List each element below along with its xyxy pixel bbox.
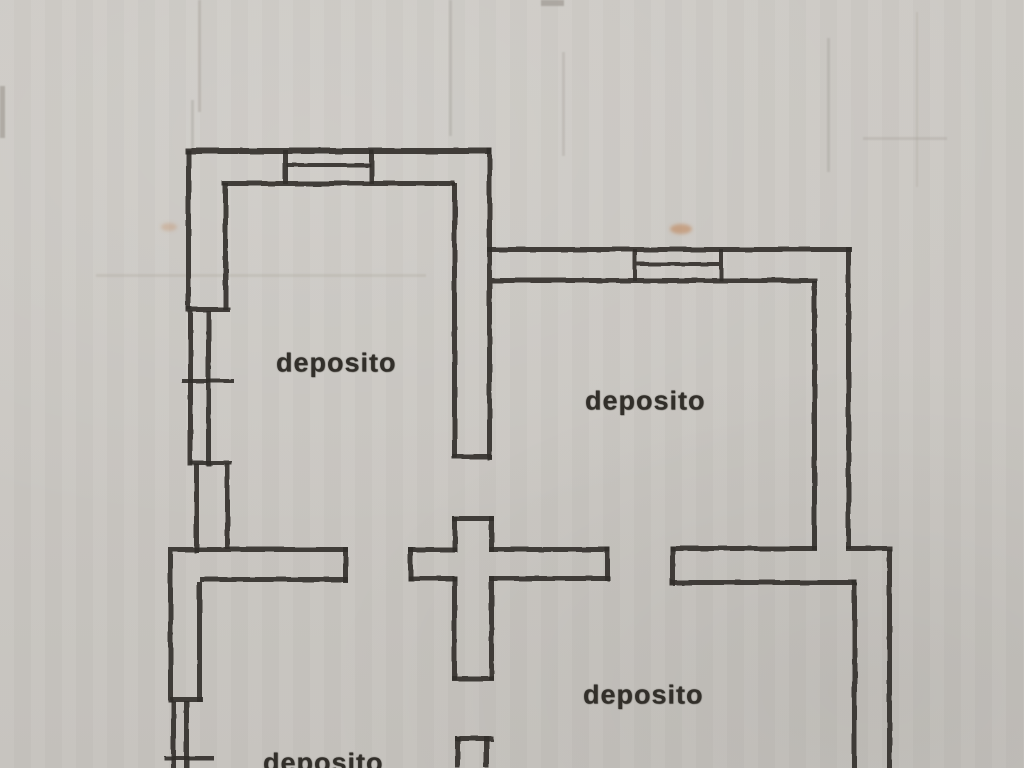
room-label-deposito-3: deposito: [583, 680, 704, 710]
room-label-deposito-1: deposito: [276, 348, 397, 378]
room-label-deposito-2: deposito: [585, 386, 706, 416]
scanned-floorplan-page: deposito deposito deposito deposito: [0, 0, 1024, 768]
room-labels: deposito deposito deposito deposito: [0, 0, 1024, 768]
room-label-deposito-4: deposito: [263, 748, 384, 768]
